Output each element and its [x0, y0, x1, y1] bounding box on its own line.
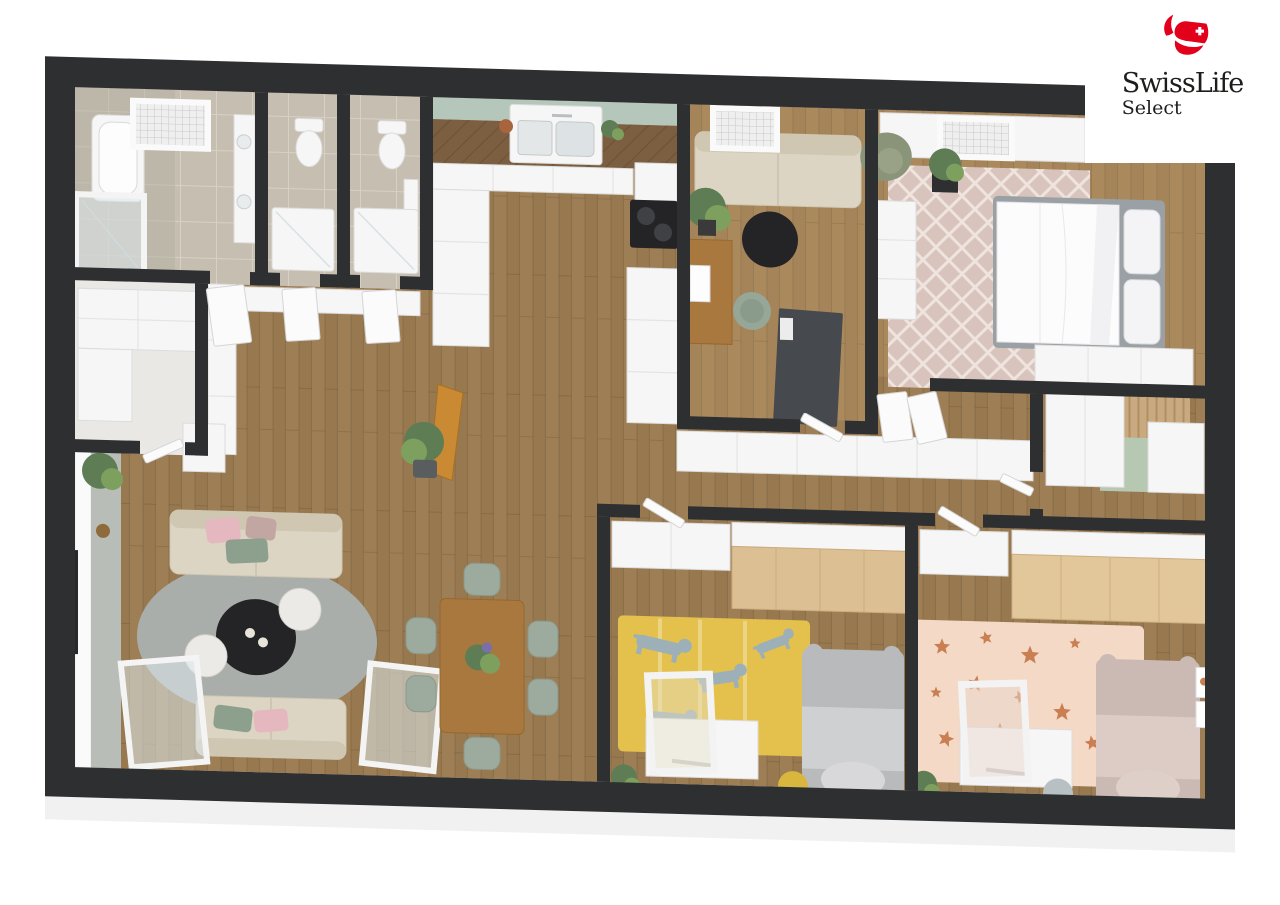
kids1-window-frame: [648, 674, 715, 772]
swisslife-flag-icon: [1152, 14, 1214, 68]
toilet: [295, 118, 323, 167]
dining-chair: [528, 679, 558, 716]
monitor: [690, 265, 710, 302]
kids2-bed: [1096, 654, 1200, 816]
dining-chair: [464, 563, 500, 596]
media-wall: [91, 448, 121, 769]
washbasin-cabinet: [234, 115, 255, 244]
pillow-green: [225, 538, 269, 564]
logo-product-text: Select: [1122, 98, 1182, 120]
dining-chair: [528, 621, 558, 658]
kids2-sideboard: [920, 530, 1008, 576]
keyboard: [780, 318, 793, 340]
pillow-mauve: [245, 515, 277, 541]
page: SwissLife Select: [0, 0, 1280, 905]
closet-wardrobe-2: [1148, 422, 1204, 494]
wc2-door: [362, 290, 400, 344]
kitchen-tall-cabinets: [433, 189, 489, 347]
dining-chair: [406, 617, 436, 654]
walk-in-closet: [1046, 393, 1204, 493]
side-table-1: [279, 588, 321, 631]
plant-pot: [413, 460, 437, 479]
double-bed: [993, 196, 1165, 353]
dining-chair: [406, 675, 436, 712]
utility-cabinet-left: [78, 348, 132, 422]
pillow-pink: [253, 708, 289, 733]
study-desk: [684, 239, 732, 344]
dining-chair: [464, 737, 500, 770]
wc1-door: [282, 287, 320, 341]
sofa-2: [196, 695, 346, 759]
kids2-window-frame: [962, 683, 1029, 781]
shower: [76, 194, 144, 274]
glass-door-panel-1: [121, 658, 207, 768]
sofa-1: [170, 510, 342, 579]
bathroom-door: [206, 284, 252, 346]
toilet: [378, 121, 406, 170]
bedroom-dresser: [1035, 345, 1193, 387]
kids1-bed: [802, 643, 904, 805]
logo-brand-text: SwissLife: [1122, 70, 1244, 98]
kitchen-sink: [510, 104, 602, 165]
study-skylight: [713, 108, 777, 150]
bathroom-skylight: [133, 101, 208, 149]
pillow-green: [213, 704, 253, 733]
swisslife-logo: SwissLife Select: [1085, 0, 1280, 163]
kitchen-stove: [630, 163, 678, 249]
logo-text: SwissLife Select: [1122, 70, 1244, 120]
kids-room-2: [911, 527, 1212, 815]
kitchen-oven-column: [627, 268, 679, 424]
